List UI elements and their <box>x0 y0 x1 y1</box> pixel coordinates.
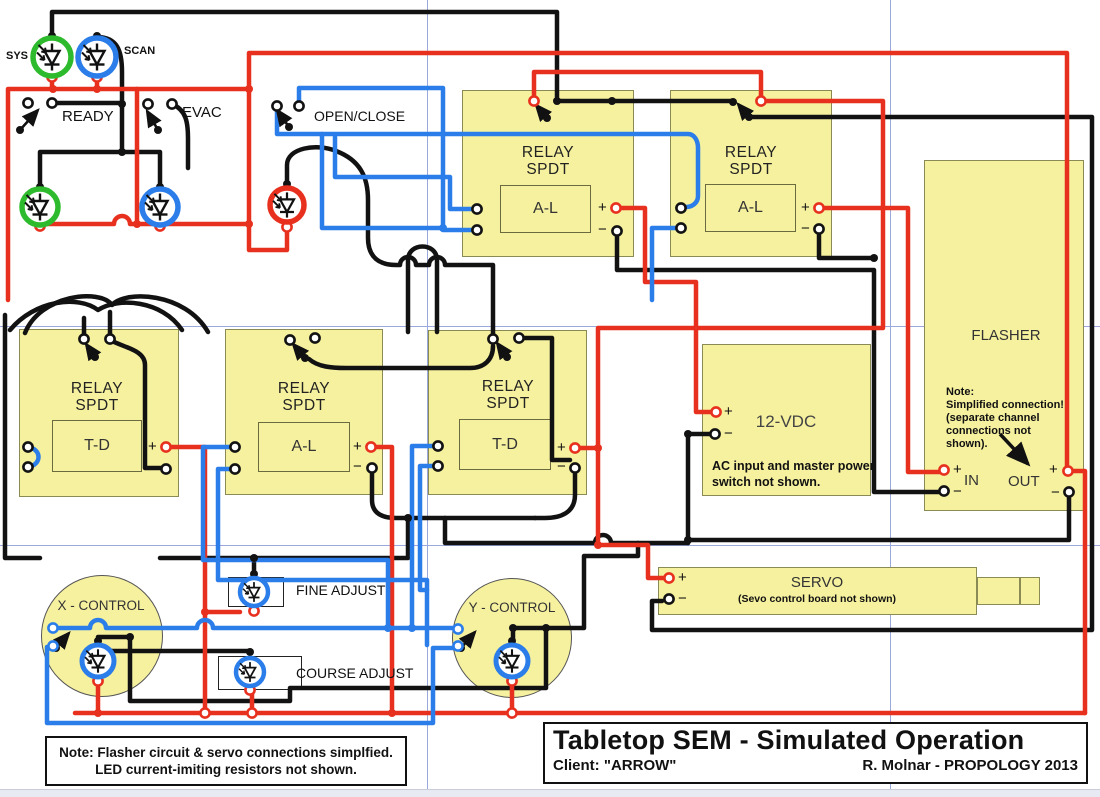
plus-label: + <box>557 439 566 456</box>
wire-relay1-plus <box>616 208 712 412</box>
wire-left-edge-drop <box>5 315 40 558</box>
relay-title: RELAY <box>482 378 534 396</box>
servo-label: SERVO <box>791 574 843 591</box>
x-control-label: X - CONTROL <box>57 598 144 613</box>
servo-subtitle: (Sevo control board not shown) <box>738 593 896 605</box>
wire-relay1-minus-run <box>617 231 941 492</box>
x-control-led-icon <box>82 645 114 677</box>
schematic-canvas: A-L A-L T-D A-L T-D <box>0 0 1100 797</box>
wire-oc-mid <box>322 134 443 228</box>
bottom-note: Note: Flasher circuit & servo connection… <box>45 736 407 786</box>
flasher-note-arrow <box>1000 434 1028 464</box>
wire-relay2-plus <box>819 208 940 472</box>
wiring-layer <box>0 0 1100 797</box>
course-adjust-label: COURSE ADJUST <box>296 665 413 681</box>
minus-label: − <box>801 220 810 237</box>
title-block: Tabletop SEM - Simulated Operation Clien… <box>543 722 1088 784</box>
wire-mid3-coil-b <box>420 466 438 590</box>
wire-mid3-minus <box>535 468 575 518</box>
flasher-note-line3: (separate channel <box>946 412 1040 425</box>
drawing-title: Tabletop SEM - Simulated Operation <box>553 725 1078 756</box>
relay-subtitle: SPDT <box>486 395 529 413</box>
minus-label: − <box>1051 484 1060 501</box>
relay-subtitle: SPDT <box>526 161 569 179</box>
flasher-note-line4: connections not <box>946 425 1031 438</box>
plus-label: + <box>353 438 362 455</box>
flasher-note-line1: Note: <box>946 386 974 399</box>
flasher-note-line2: Simplified connection! <box>946 399 1064 412</box>
green-led-icon <box>22 189 58 225</box>
ready-label: READY <box>62 108 114 125</box>
ready-switch-arm[interactable] <box>20 110 38 130</box>
wire-mid2-minus <box>372 468 535 518</box>
power-note-line1: AC input and master power <box>712 459 875 473</box>
minus-label: − <box>148 459 157 476</box>
plus-label: + <box>598 199 607 216</box>
minus-label: − <box>557 458 566 475</box>
flasher-label: FLASHER <box>971 327 1040 344</box>
minus-label: − <box>724 425 733 442</box>
wire-relay2-coil-minus <box>652 228 681 300</box>
plus-label: + <box>953 461 962 478</box>
wire-lamp-row2 <box>40 152 160 187</box>
openclose-label: OPEN/CLOSE <box>314 108 405 124</box>
y-control-led-icon <box>496 645 528 677</box>
scan-label: SCAN <box>124 45 155 57</box>
minus-label: − <box>953 483 962 500</box>
relay-title: RELAY <box>71 380 123 398</box>
course-adjust-led-icon <box>236 658 264 686</box>
plus-label: + <box>801 199 810 216</box>
plus-label: + <box>724 403 733 420</box>
wire-pot-top-rail <box>53 620 455 628</box>
bottom-strip <box>0 789 1100 797</box>
wire-vdc-minus <box>688 434 712 543</box>
wire-ground-mid <box>445 518 688 543</box>
bottom-note-line1: Note: Flasher circuit & servo connection… <box>59 744 393 761</box>
flasher-in-label: IN <box>964 472 979 489</box>
relay-subtitle: SPDT <box>729 161 772 179</box>
power-label: 12-VDC <box>756 412 816 432</box>
relay-title: RELAY <box>278 380 330 398</box>
relay-subtitle: SPDT <box>75 397 118 415</box>
fine-adjust-led-icon <box>240 578 268 606</box>
wire-mid2-internal <box>309 346 493 368</box>
scan-led-icon <box>78 38 116 76</box>
minus-label: − <box>678 590 687 607</box>
relay-subtitle: SPDT <box>282 397 325 415</box>
switch-arrows <box>20 104 1028 648</box>
relay-title: RELAY <box>725 144 777 162</box>
plus-label: + <box>148 438 157 455</box>
y-control-label: Y - CONTROL <box>469 600 556 615</box>
minus-label: − <box>353 458 362 475</box>
minus-label: − <box>598 221 607 238</box>
plus-label: + <box>1049 461 1058 478</box>
flasher-out-label: OUT <box>1008 473 1040 490</box>
red-led-icon <box>270 188 304 222</box>
wire-y-lamp-net <box>513 543 638 643</box>
wire-oc-left <box>277 111 698 207</box>
power-note-line2: switch not shown. <box>712 475 820 489</box>
sys-label: SYS <box>6 50 28 62</box>
bottom-note-line2: LED current-imiting resistors not shown. <box>95 761 357 778</box>
sys-led-icon <box>33 38 71 76</box>
fine-adjust-label: FINE ADJUST <box>296 582 385 598</box>
flasher-note-line5: shown). <box>946 438 988 451</box>
wire-course-top <box>98 643 250 651</box>
wire-relay1-coil <box>335 137 477 209</box>
evac-label: EVAC <box>182 104 222 121</box>
blue-led-icon <box>142 189 178 225</box>
plus-label: + <box>678 569 687 586</box>
wire-fine-top <box>160 518 408 575</box>
relay-title: RELAY <box>522 144 574 162</box>
credit-label: R. Molnar - PROPOLOGY 2013 <box>862 757 1078 774</box>
wire-out-minus <box>688 492 1069 540</box>
wire-relay-rail-72 <box>534 72 761 101</box>
client-label: Client: "ARROW" <box>553 757 676 774</box>
wire-relay2-minus-run <box>819 229 874 258</box>
